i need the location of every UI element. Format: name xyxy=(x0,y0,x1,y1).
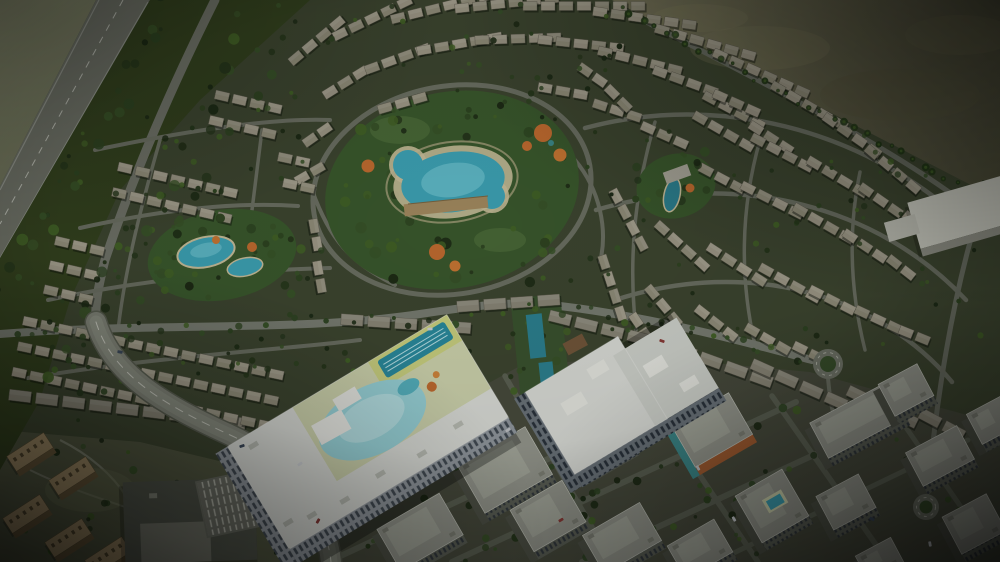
aerial-masterplan-render xyxy=(0,0,1000,562)
masterplan-svg xyxy=(0,0,1000,562)
vignette-overlay xyxy=(0,0,1000,562)
